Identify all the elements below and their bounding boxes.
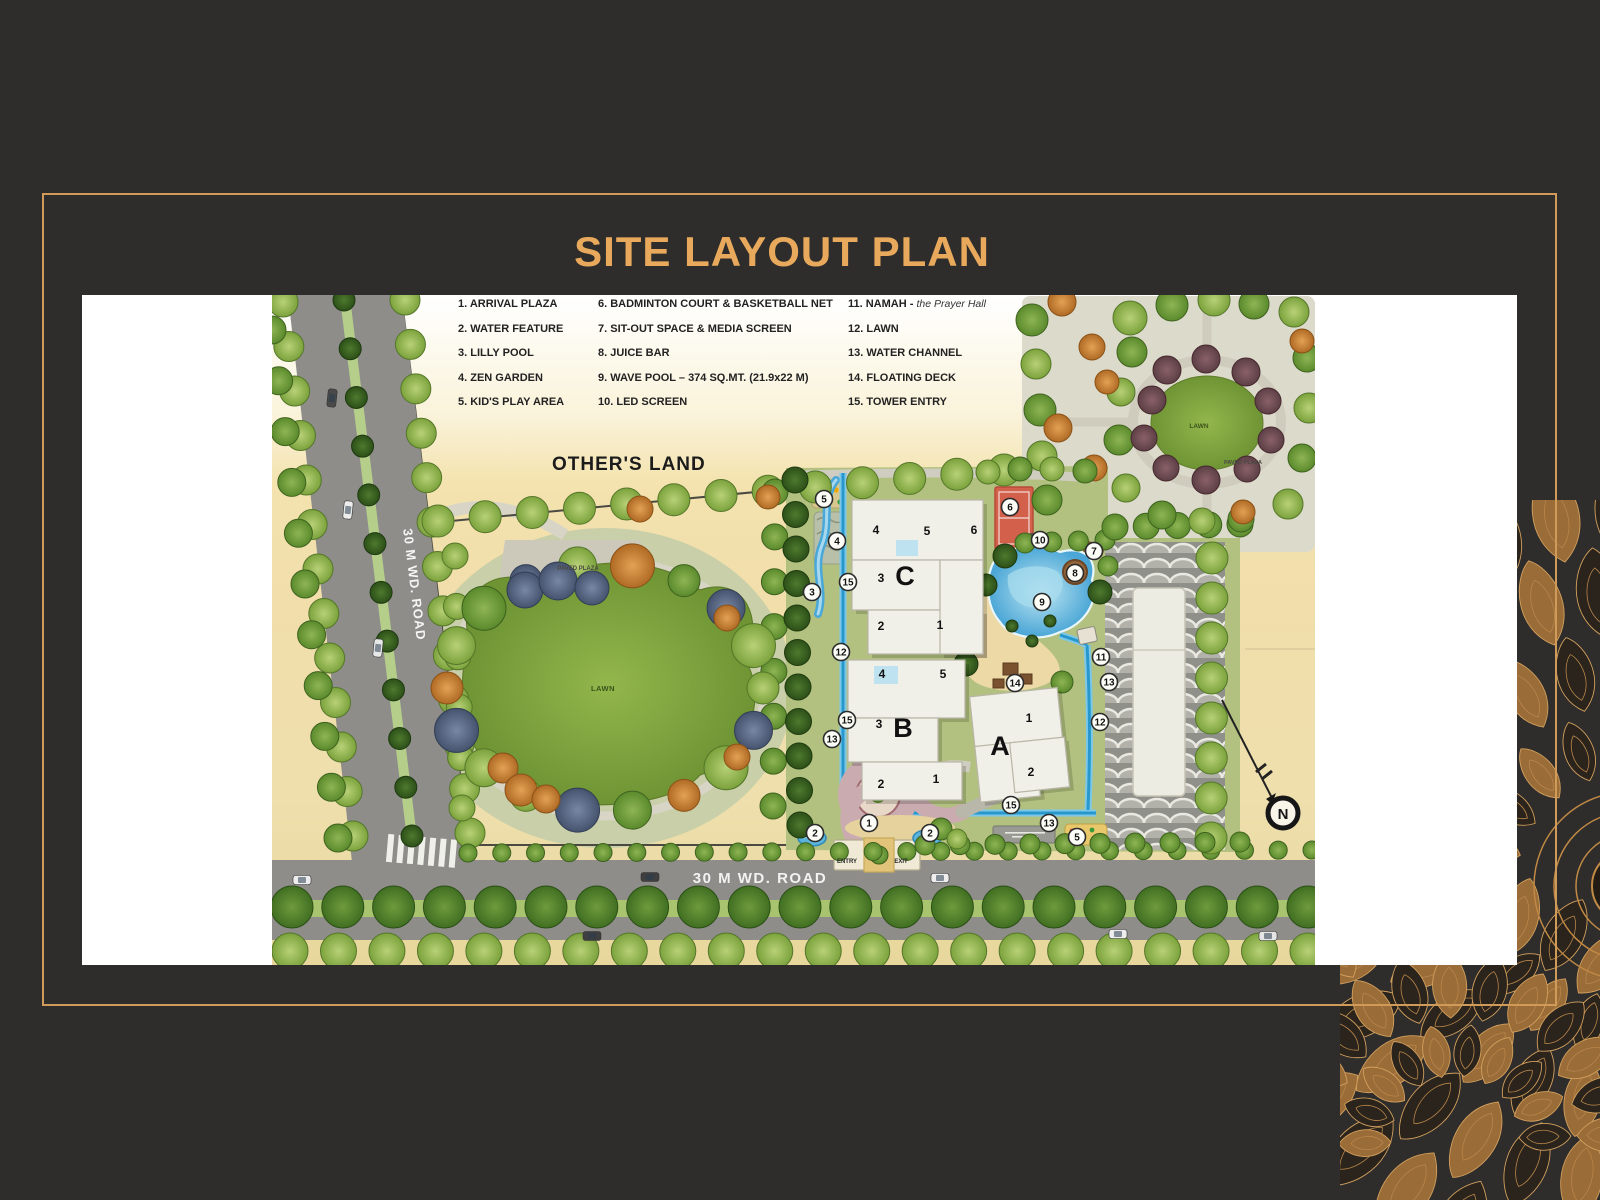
legend-item: 8. JUICE BAR xyxy=(598,341,833,366)
svg-text:1: 1 xyxy=(866,819,872,830)
plan-marker-badge: 12 xyxy=(1092,714,1109,731)
tree-icon xyxy=(1288,444,1315,472)
tree-icon xyxy=(474,886,516,928)
legend-item: 1. ARRIVAL PLAZA xyxy=(458,292,564,317)
plan-marker-badge: 14 xyxy=(1007,675,1024,692)
tree-icon xyxy=(627,496,653,522)
tree-icon xyxy=(610,544,654,588)
tree-icon xyxy=(1044,414,1072,442)
plan-marker-badge: 13 xyxy=(1101,674,1118,691)
tree-icon xyxy=(1040,457,1064,481)
tree-icon xyxy=(714,605,740,631)
tree-icon xyxy=(291,570,319,598)
tower-unit-number: 2 xyxy=(878,619,885,633)
svg-text:13: 13 xyxy=(1043,819,1055,830)
tree-icon xyxy=(406,418,436,448)
tree-icon xyxy=(1032,485,1062,515)
tree-icon xyxy=(1236,886,1278,928)
tree-icon xyxy=(1255,388,1281,414)
tree-icon xyxy=(564,492,596,524)
tree-icon xyxy=(284,519,312,547)
legend-column-1: 1. ARRIVAL PLAZA2. WATER FEATURE3. LILLY… xyxy=(458,292,564,415)
plan-marker-badge: 5 xyxy=(1069,829,1086,846)
tree-icon xyxy=(1102,514,1128,540)
tree-icon xyxy=(613,791,651,829)
legend-item: 15. TOWER ENTRY xyxy=(848,390,986,415)
tree-icon xyxy=(1239,295,1269,319)
tree-icon xyxy=(401,374,431,404)
tree-icon xyxy=(786,709,812,735)
tree-icon xyxy=(1113,301,1147,335)
car-icon xyxy=(583,932,601,941)
tree-icon xyxy=(272,418,299,446)
tree-icon xyxy=(369,933,405,965)
svg-text:2: 2 xyxy=(812,829,818,840)
svg-text:15: 15 xyxy=(1005,801,1017,812)
tree-icon xyxy=(435,708,479,752)
tree-icon xyxy=(760,793,786,819)
tree-icon xyxy=(1125,833,1145,853)
legend-item: 6. BADMINTON COURT & BASKETBALL NET xyxy=(598,292,833,317)
tree-icon xyxy=(982,886,1024,928)
legend-item: 9. WAVE POOL – 374 SQ.MT. (21.9x22 M) xyxy=(598,366,833,391)
tree-icon xyxy=(731,624,775,668)
svg-text:5: 5 xyxy=(1074,833,1080,844)
lawn-topright-label: LAWN xyxy=(1189,423,1208,430)
tree-icon xyxy=(783,536,809,562)
legend-item: 7. SIT-OUT SPACE & MEDIA SCREEN xyxy=(598,317,833,342)
tree-icon xyxy=(660,933,696,965)
tree-icon xyxy=(1073,459,1097,483)
tree-icon xyxy=(864,843,882,861)
tree-icon xyxy=(1021,349,1051,379)
tree-icon xyxy=(389,728,411,750)
tree-icon xyxy=(947,829,967,849)
road-bottom-label: 30 M WD. ROAD xyxy=(693,870,828,887)
svg-text:15: 15 xyxy=(841,716,853,727)
car-icon xyxy=(1109,930,1127,939)
tower-unit-number: 5 xyxy=(924,524,931,538)
svg-text:2: 2 xyxy=(927,829,933,840)
tree-icon xyxy=(532,785,560,813)
plan-marker-badge: 11 xyxy=(1093,649,1110,666)
others-land-label: OTHER'S LAND xyxy=(552,454,706,475)
tree-icon xyxy=(1193,933,1229,965)
tree-icon xyxy=(1006,620,1018,632)
svg-text:15: 15 xyxy=(842,578,854,589)
svg-text:10: 10 xyxy=(1034,536,1046,547)
tree-icon xyxy=(677,886,719,928)
tree-icon xyxy=(931,886,973,928)
tree-icon xyxy=(417,933,453,965)
lawn-center-label: LAWN xyxy=(591,684,615,693)
tree-icon xyxy=(278,468,306,496)
legend-item: 13. WATER CHANNEL xyxy=(848,341,986,366)
tree-icon xyxy=(1156,295,1188,321)
tree-icon xyxy=(1131,425,1157,451)
tree-icon xyxy=(272,933,308,965)
tree-icon xyxy=(708,933,744,965)
tree-icon xyxy=(469,501,501,533)
tree-icon xyxy=(422,505,454,537)
tree-icon xyxy=(493,844,511,862)
tree-icon xyxy=(442,543,468,569)
svg-text:6: 6 xyxy=(1007,503,1013,514)
tree-icon xyxy=(1026,635,1038,647)
tree-icon xyxy=(364,533,386,555)
tree-icon xyxy=(1160,833,1180,853)
tree-icon xyxy=(1117,337,1147,367)
exit-label: EXIT xyxy=(894,859,908,865)
tree-icon xyxy=(317,773,345,801)
tree-icon xyxy=(1153,455,1179,481)
legend-column-3: 11. NAMAH - the Prayer Hall12. LAWN13. W… xyxy=(848,292,986,415)
tree-icon xyxy=(1079,334,1105,360)
tower-unit-number: 6 xyxy=(971,523,978,537)
svg-text:7: 7 xyxy=(1091,547,1097,558)
tree-icon xyxy=(358,484,380,506)
tree-icon xyxy=(1192,345,1220,373)
tree-icon xyxy=(1095,370,1119,394)
legend-column-2: 6. BADMINTON COURT & BASKETBALL NET7. SI… xyxy=(598,292,833,415)
plan-marker-badge: 9 xyxy=(1034,594,1051,611)
tree-icon xyxy=(373,886,415,928)
tree-icon xyxy=(382,679,404,701)
tree-icon xyxy=(516,497,548,529)
tree-icon xyxy=(999,933,1035,965)
tree-icon xyxy=(1098,556,1118,576)
tree-icon xyxy=(1033,886,1075,928)
legend-item: 11. NAMAH - the Prayer Hall xyxy=(848,292,986,317)
tree-icon xyxy=(1189,508,1215,534)
tree-icon xyxy=(763,843,781,861)
tree-icon xyxy=(734,711,772,749)
tree-icon xyxy=(507,572,543,608)
tree-icon xyxy=(1044,615,1056,627)
tree-icon xyxy=(1135,886,1177,928)
plan-marker-badge: 15 xyxy=(840,574,857,591)
tree-icon xyxy=(847,467,879,499)
plan-marker-badge: 13 xyxy=(824,731,841,748)
tree-icon xyxy=(449,795,475,821)
tree-icon xyxy=(594,844,612,862)
plan-marker-badge: 13 xyxy=(1041,815,1058,832)
tree-icon xyxy=(747,672,779,704)
car-icon xyxy=(327,389,338,408)
tree-icon xyxy=(705,480,737,512)
tree-icon xyxy=(898,842,916,860)
legend-item: 10. LED SCREEN xyxy=(598,390,833,415)
tree-icon xyxy=(1230,832,1250,852)
tower-unit-number: 2 xyxy=(878,777,885,791)
tree-icon xyxy=(783,502,809,528)
tree-icon xyxy=(728,886,770,928)
tree-icon xyxy=(556,788,600,832)
plan-marker-badge: 15 xyxy=(839,712,856,729)
tree-icon xyxy=(993,544,1017,568)
legend-item: 3. LILLY POOL xyxy=(458,341,564,366)
tower-unit-number: 4 xyxy=(873,523,880,537)
tree-icon xyxy=(760,748,786,774)
tree-icon xyxy=(976,460,1000,484)
tree-icon xyxy=(611,933,647,965)
tree-icon xyxy=(724,744,750,770)
tree-icon xyxy=(1048,933,1084,965)
tower-letter: B xyxy=(893,713,913,743)
legend-item: 2. WATER FEATURE xyxy=(458,317,564,342)
tower-unit-number: 5 xyxy=(940,667,947,681)
tree-icon xyxy=(1279,297,1309,327)
tower-unit-number: 4 xyxy=(879,667,886,681)
tree-icon xyxy=(1008,457,1032,481)
tree-icon xyxy=(854,933,890,965)
tree-icon xyxy=(830,843,848,861)
plan-marker-badge: 6 xyxy=(1002,499,1019,516)
tree-icon xyxy=(1196,622,1228,654)
svg-text:11: 11 xyxy=(1096,653,1107,664)
tower-letter: C xyxy=(895,561,915,591)
legend-item: 12. LAWN xyxy=(848,317,986,342)
tree-icon xyxy=(560,844,578,862)
tree-icon xyxy=(459,844,477,862)
tree-icon xyxy=(322,886,364,928)
plan-marker-badge: 7 xyxy=(1086,543,1103,560)
tree-icon xyxy=(455,818,485,848)
car-icon xyxy=(343,501,354,520)
tower-unit-number: 3 xyxy=(876,717,883,731)
tree-icon xyxy=(370,581,392,603)
tree-icon xyxy=(272,886,313,928)
tree-icon xyxy=(668,779,700,811)
tree-icon xyxy=(627,886,669,928)
tree-icon xyxy=(339,338,361,360)
tree-icon xyxy=(1088,580,1112,604)
tree-icon xyxy=(1195,742,1227,774)
tree-icon xyxy=(658,484,690,516)
car-icon xyxy=(931,874,949,883)
svg-text:14: 14 xyxy=(1009,679,1021,690)
tree-icon xyxy=(412,463,442,493)
tree-icon xyxy=(1153,356,1181,384)
tree-icon xyxy=(1090,833,1110,853)
legend-item: 4. ZEN GARDEN xyxy=(458,366,564,391)
tree-icon xyxy=(575,571,609,605)
tower-unit-number: 3 xyxy=(878,571,885,585)
tree-icon xyxy=(785,674,811,700)
tree-icon xyxy=(785,640,811,666)
plan-marker-badge: 10 xyxy=(1032,532,1049,549)
tree-icon xyxy=(695,843,713,861)
plan-marker-badge: 4 xyxy=(829,533,846,550)
tree-icon xyxy=(311,722,339,750)
tree-icon xyxy=(628,843,646,861)
tree-icon xyxy=(1273,489,1303,519)
tree-icon xyxy=(1145,933,1181,965)
svg-text:13: 13 xyxy=(1103,678,1115,689)
tree-icon xyxy=(757,933,793,965)
tree-icon xyxy=(1196,582,1228,614)
svg-text:12: 12 xyxy=(835,648,847,659)
tree-icon xyxy=(438,627,476,665)
tree-icon xyxy=(576,886,618,928)
tower-letter: A xyxy=(990,731,1010,761)
tree-icon xyxy=(902,933,938,965)
svg-text:4: 4 xyxy=(834,537,840,548)
tree-icon xyxy=(431,672,463,704)
tree-icon xyxy=(1192,466,1220,494)
tree-icon xyxy=(787,778,813,804)
tree-icon xyxy=(985,834,1005,854)
tree-icon xyxy=(395,329,425,359)
paved-plaza-topright-label: PAVED PLAZA xyxy=(1224,460,1262,466)
tree-icon xyxy=(525,886,567,928)
tree-icon xyxy=(1195,702,1227,734)
tower-unit-number: 2 xyxy=(1028,765,1035,779)
tree-icon xyxy=(1232,358,1260,386)
tree-icon xyxy=(298,621,326,649)
car-icon xyxy=(293,876,311,885)
tree-icon xyxy=(324,824,352,852)
tree-icon xyxy=(1148,501,1176,529)
tree-icon xyxy=(1196,542,1228,574)
tree-icon xyxy=(1185,886,1227,928)
tree-icon xyxy=(784,605,810,631)
tree-icon xyxy=(315,643,345,673)
svg-text:8: 8 xyxy=(1072,569,1078,580)
plan-marker-badge: 2 xyxy=(807,825,824,842)
plan-marker-badge: 8 xyxy=(1067,565,1084,582)
tree-icon xyxy=(668,565,700,597)
plan-marker-badge: 1 xyxy=(861,815,878,832)
tree-icon xyxy=(894,463,926,495)
tree-icon xyxy=(729,843,747,861)
tower-unit-number: 1 xyxy=(937,618,944,632)
tree-icon xyxy=(1196,662,1228,694)
entry-label: ENTRY xyxy=(837,859,857,865)
tree-icon xyxy=(797,843,815,861)
tree-icon xyxy=(1195,782,1227,814)
tree-icon xyxy=(951,933,987,965)
plan-marker-badge: 2 xyxy=(922,825,939,842)
tree-icon xyxy=(304,672,332,700)
svg-text:9: 9 xyxy=(1039,598,1045,609)
tower-unit-number: 1 xyxy=(933,772,940,786)
tree-icon xyxy=(1104,425,1134,455)
tree-icon xyxy=(805,933,841,965)
tree-icon xyxy=(1195,832,1215,852)
tree-icon xyxy=(395,776,417,798)
tree-icon xyxy=(782,467,808,493)
car-icon xyxy=(641,873,659,882)
svg-text:5: 5 xyxy=(821,495,827,506)
tree-icon xyxy=(345,386,367,408)
legend-item: 14. FLOATING DECK xyxy=(848,366,986,391)
tree-icon xyxy=(1231,500,1255,524)
page-title: SITE LAYOUT PLAN xyxy=(432,228,1132,276)
tree-icon xyxy=(1290,329,1314,353)
tree-icon xyxy=(527,844,545,862)
tree-icon xyxy=(514,933,550,965)
tree-icon xyxy=(786,743,812,769)
svg-text:12: 12 xyxy=(1094,718,1106,729)
tree-icon xyxy=(320,933,356,965)
legend-item: 5. KID'S PLAY AREA xyxy=(458,390,564,415)
tree-icon xyxy=(830,886,872,928)
paved-plaza-center-label: PAVED PLAZA xyxy=(557,566,599,572)
tree-icon xyxy=(941,458,973,490)
tree-icon xyxy=(1112,474,1140,502)
tree-icon xyxy=(779,886,821,928)
plan-marker-badge: 3 xyxy=(804,584,821,601)
tree-icon xyxy=(423,886,465,928)
plan-marker-badge: 15 xyxy=(1003,797,1020,814)
compass-north-label: N xyxy=(1278,806,1289,823)
svg-text:3: 3 xyxy=(809,588,815,599)
car-icon xyxy=(373,639,384,658)
tree-icon xyxy=(462,586,506,630)
tree-icon xyxy=(881,886,923,928)
svg-text:13: 13 xyxy=(826,735,838,746)
car-icon xyxy=(1259,932,1277,941)
tree-icon xyxy=(1138,386,1166,414)
tree-icon xyxy=(1084,886,1126,928)
tree-icon xyxy=(352,435,374,457)
slide: SITE LAYOUT PLAN OTHER'S LAND 30 M WD. R… xyxy=(0,0,1600,1200)
tree-icon xyxy=(1258,427,1284,453)
plan-marker-badge: 5 xyxy=(816,491,833,508)
tree-icon xyxy=(1269,841,1287,859)
tree-icon xyxy=(662,843,680,861)
tower-unit-number: 1 xyxy=(1026,711,1033,725)
tree-icon xyxy=(1016,304,1048,336)
tree-icon xyxy=(1020,834,1040,854)
tree-icon xyxy=(466,933,502,965)
tree-icon xyxy=(756,485,780,509)
tree-icon xyxy=(401,825,423,847)
plan-marker-badge: 12 xyxy=(833,644,850,661)
